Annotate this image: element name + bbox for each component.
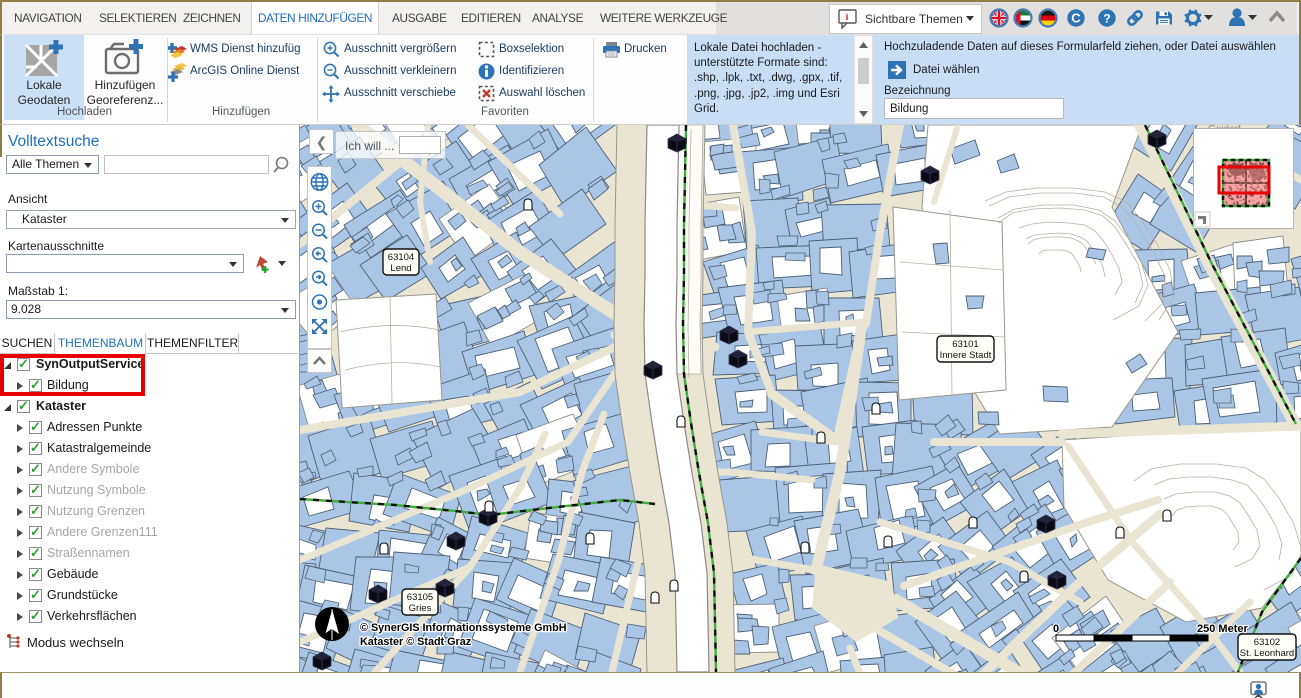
svg-text:Gries: Gries (409, 603, 432, 614)
svg-text:Kataster © Stadt Graz: Kataster © Stadt Graz (360, 636, 472, 648)
svg-text:63105: 63105 (407, 592, 433, 603)
svg-text:?: ? (1103, 12, 1110, 26)
svg-text:Lend: Lend (390, 263, 411, 274)
svg-text:63102: 63102 (1254, 637, 1280, 648)
svg-text:St. Leonhard: St. Leonhard (1240, 648, 1294, 659)
svg-text:250 Meter: 250 Meter (1197, 623, 1248, 635)
svg-text:Innere Stadt: Innere Stadt (940, 350, 992, 361)
svg-text:63101: 63101 (952, 339, 978, 350)
svg-text:© SynerGIS Informationssysteme: © SynerGIS Informationssysteme GmbH (360, 622, 567, 634)
svg-text:63104: 63104 (388, 252, 414, 263)
svg-text:C: C (1071, 11, 1081, 26)
svg-text:0: 0 (1053, 623, 1059, 635)
